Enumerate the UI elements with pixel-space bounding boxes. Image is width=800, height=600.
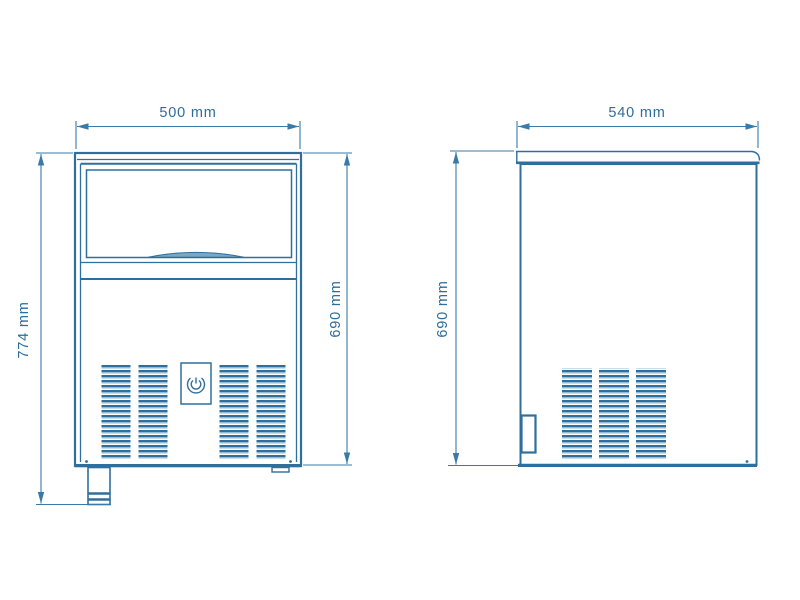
side-vent-slat-column-1: [562, 368, 592, 459]
side-view: 540 mm 690 mm: [435, 105, 760, 466]
side-height-label: 690 mm: [435, 280, 451, 337]
front-vent-slat-column-4: [257, 365, 286, 459]
side-machine-outline: [516, 152, 760, 466]
adjustable-foot: [88, 468, 110, 505]
side-lid-top: [516, 152, 760, 161]
screw-dot-side: [746, 460, 749, 463]
dimension-arrowhead-icon: [518, 123, 530, 129]
side-height-dimension: 690 mm: [435, 151, 518, 466]
side-vent-slat-column-2: [599, 368, 629, 459]
dimension-arrowhead-icon: [453, 453, 459, 465]
side-depth-dimension: 540 mm: [517, 105, 758, 148]
front-body-height-label: 690 mm: [328, 280, 344, 337]
side-drain-panel: [522, 416, 536, 453]
right-foot-stub: [272, 468, 289, 473]
dimension-arrowhead-icon: [453, 152, 459, 164]
dimension-arrowhead-icon: [38, 492, 44, 504]
side-depth-label: 540 mm: [608, 105, 665, 121]
front-width-label: 500 mm: [159, 105, 216, 121]
screw-dot-left: [85, 460, 88, 463]
front-vent-slat-column-1: [102, 365, 131, 459]
dimension-arrowhead-icon: [344, 453, 350, 465]
front-vent-slat-column-2: [139, 365, 168, 459]
front-body-height-dimension: 690 mm: [303, 153, 352, 465]
ice-maker-dimension-drawing: 500 mm 774 mm 690 mm: [0, 0, 800, 600]
front-vent-slat-column-3: [220, 365, 249, 459]
front-machine-outline: [75, 153, 301, 505]
front-width-dimension: 500 mm: [76, 105, 300, 149]
door-handle: [148, 252, 244, 257]
brand-emblem-icon: [188, 378, 205, 393]
dimension-drawing-page: 500 mm 774 mm 690 mm: [0, 0, 800, 600]
screw-dot-right: [289, 460, 292, 463]
dimension-arrowhead-icon: [38, 154, 44, 166]
dimension-arrowhead-icon: [288, 123, 300, 129]
front-view: 500 mm 774 mm 690 mm: [16, 105, 352, 505]
dimension-arrowhead-icon: [77, 123, 89, 129]
front-door-panel: [87, 170, 292, 258]
dimension-arrowhead-icon: [344, 154, 350, 166]
front-total-height-label: 774 mm: [16, 301, 32, 358]
logo-badge: [181, 363, 211, 404]
dimension-arrowhead-icon: [746, 123, 758, 129]
side-vent-slat-column-3: [636, 368, 666, 459]
front-total-height-dimension: 774 mm: [16, 153, 111, 505]
